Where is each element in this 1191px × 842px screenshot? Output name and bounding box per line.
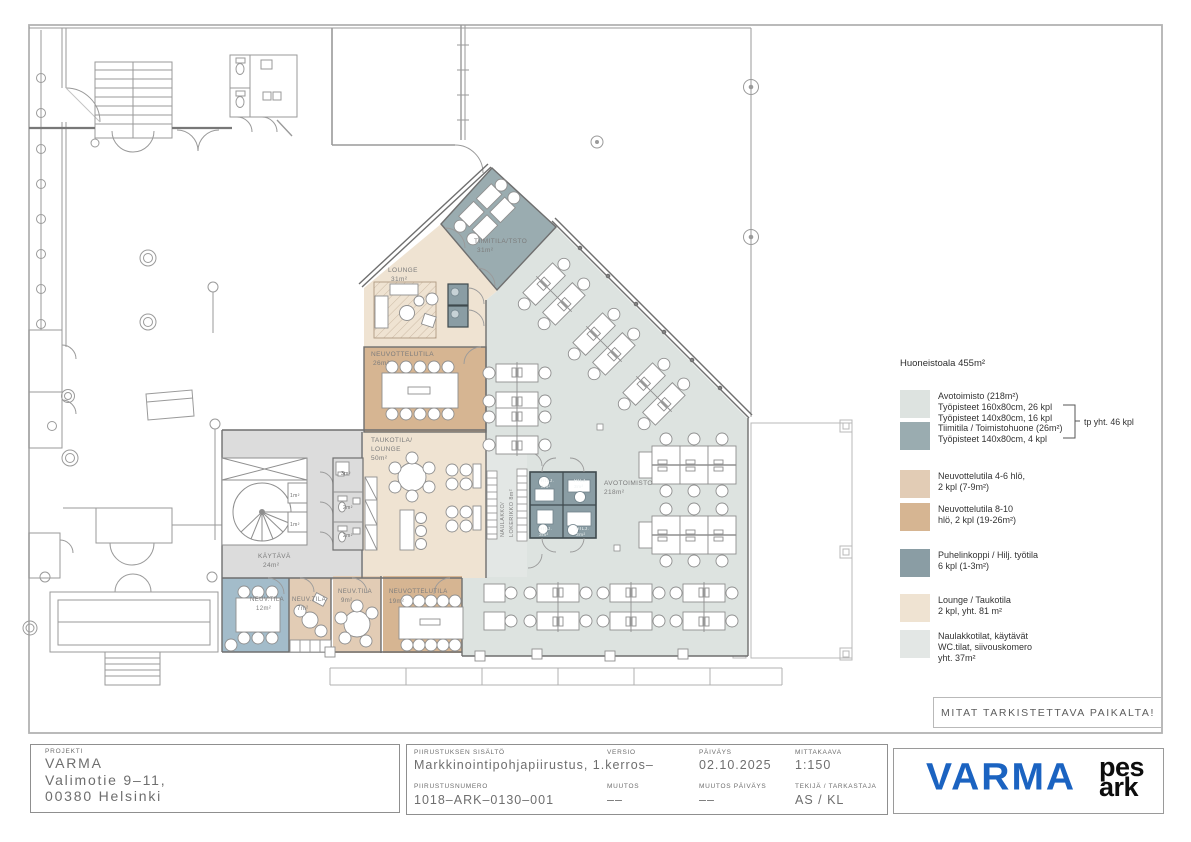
svg-text:26m²: 26m²: [373, 360, 390, 367]
room-label: NEUV.TILA: [292, 597, 326, 603]
numero-label: PIIRUSTUSNUMERO: [414, 783, 488, 790]
legend-swatch: [900, 549, 930, 577]
drawing-sheet: LOUNGE 31m² TIIMITILA/TSTO 31m² NEUVOTTE…: [0, 0, 1191, 842]
svg-text:31m²: 31m²: [477, 247, 494, 254]
svg-text:HILJ.: HILJ.: [574, 478, 587, 484]
project-label: PROJEKTI: [45, 748, 399, 755]
svg-text:3m²: 3m²: [539, 532, 548, 538]
legend-bracket: tp yht. 46 kpl: [1058, 398, 1178, 448]
project-name: VARMA: [45, 755, 399, 772]
legend-swatch: [900, 390, 930, 418]
svg-text:9m²: 9m²: [341, 598, 353, 604]
numero-value: 1018–ARK–0130–001: [414, 793, 554, 807]
room-label: TIIMITILA/TSTO: [474, 238, 527, 245]
svg-text:31m²: 31m²: [391, 276, 408, 283]
svg-text:50m²: 50m²: [371, 455, 388, 462]
legend-swatch: [900, 630, 930, 658]
tekija-value: AS / KL: [795, 793, 844, 807]
pes-ark-logo: pes ark: [1099, 757, 1144, 797]
bracket-label: tp yht. 46 kpl: [1084, 417, 1134, 427]
room-label: NEUVOTTELUTILA: [389, 589, 448, 595]
paivays-label: PÄIVÄYS: [699, 749, 732, 756]
svg-text:1m²: 1m²: [290, 522, 300, 528]
svg-text:3m²: 3m²: [574, 484, 583, 490]
room-label: NEUVOTTELUTILA: [371, 351, 434, 358]
titleblock-logos: VARMA pes ark: [893, 748, 1164, 814]
spiral-stair: [222, 458, 307, 545]
svg-text:HILJ.: HILJ.: [576, 526, 589, 532]
content-label: PIIRUSTUKSEN SISÄLTÖ: [414, 749, 505, 756]
tekija-label: TEKIJÄ / TARKASTAJA: [795, 783, 877, 790]
paivays-value: 02.10.2025: [699, 758, 772, 772]
svg-text:3m²: 3m²: [576, 532, 585, 538]
content-value: Markkinointipohjapiirustus, 1.kerros–: [414, 758, 654, 772]
svg-text:2m²: 2m²: [343, 533, 353, 539]
room-label: LOUNGE: [388, 267, 418, 274]
svg-text:218m²: 218m²: [604, 489, 625, 496]
versio-label: VERSIO: [607, 749, 636, 756]
legend-swatch: [900, 422, 930, 450]
room-label: KÄYTÄVÄ: [258, 552, 291, 560]
site-check-note: MITAT TARKISTETTAVA PAIKALTA!: [933, 697, 1163, 728]
svg-text:LOUNGE: LOUNGE: [371, 446, 401, 453]
muutos-paivays-value: ––: [699, 793, 715, 807]
room-label: TAUKOTILA/: [371, 437, 412, 444]
mittakaava-label: MITTAKAAVA: [795, 749, 842, 756]
svg-text:HILJ.: HILJ.: [539, 526, 552, 532]
zone-taukotila: [362, 432, 486, 578]
svg-text:HILJ.: HILJ.: [541, 478, 554, 484]
project-address-2: 00380 Helsinki: [45, 788, 399, 805]
varma-logo: VARMA: [926, 757, 1076, 800]
titleblock-project: PROJEKTI VARMA Valimotie 9–11, 00380 Hel…: [30, 744, 400, 813]
svg-text:24m²: 24m²: [263, 562, 280, 569]
legend-title: Huoneistoala 455m²: [900, 358, 985, 369]
svg-text:19m²: 19m²: [389, 599, 404, 605]
svg-text:1m²: 1m²: [290, 493, 300, 499]
legend-swatch: [900, 594, 930, 622]
room-label: NEUV.TILA: [338, 589, 372, 595]
svg-text:7m²: 7m²: [297, 606, 309, 612]
room-label: AVOTOIMISTO: [604, 480, 653, 487]
svg-text:3m²: 3m²: [341, 471, 351, 477]
room-label: NEUV.TILA: [250, 597, 284, 603]
legend-swatch: [900, 470, 930, 498]
muutos-value: ––: [607, 793, 623, 807]
project-address-1: Valimotie 9–11,: [45, 772, 399, 789]
titleblock-drawing-info: PIIRUSTUKSEN SISÄLTÖ Markkinointipohjapi…: [406, 744, 888, 815]
svg-text:12m²: 12m²: [256, 606, 271, 612]
svg-text:LOKERIKKO 8m²: LOKERIKKO 8m²: [509, 489, 515, 537]
svg-text:2m²: 2m²: [343, 505, 353, 511]
muutos-label: MUUTOS: [607, 783, 639, 790]
legend-swatch: [900, 503, 930, 531]
svg-text:NAULAKKO/: NAULAKKO/: [500, 502, 506, 537]
muutos-paivays-label: MUUTOS PÄIVÄYS: [699, 783, 766, 790]
svg-text:3m²: 3m²: [541, 484, 550, 490]
mittakaava-value: 1:150: [795, 758, 831, 772]
